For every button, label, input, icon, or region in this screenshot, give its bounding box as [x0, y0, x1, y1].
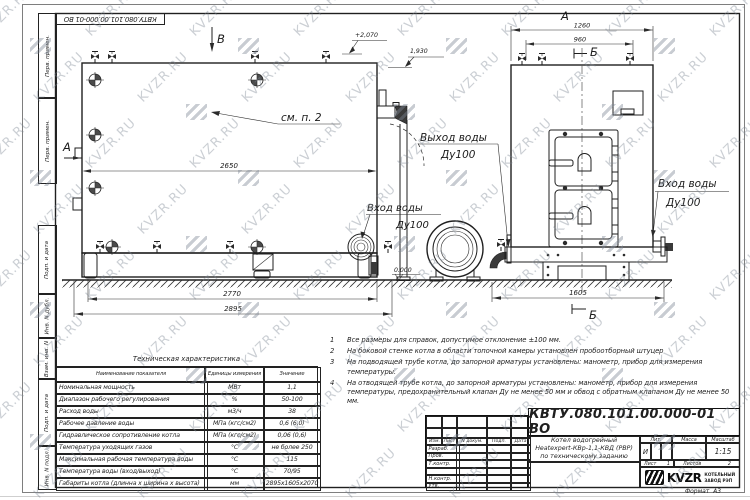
note-item: 3На подводящей трубе котла, до запорной …	[330, 358, 734, 376]
dim-2895: 2895	[224, 305, 242, 313]
corner-doc-number: КВТУ.080.101.00.000-01 ВО	[64, 15, 157, 23]
view-b-label: В	[217, 32, 225, 46]
lit-header: Лит.	[640, 436, 672, 443]
scale-header: Масштаб	[706, 436, 740, 443]
spec-cell: мм	[204, 477, 265, 491]
kvzr-wordmark: KVZR	[667, 471, 702, 485]
see-note-label: см. п. 2	[281, 112, 322, 124]
fan-blower	[427, 221, 483, 281]
front-view-boiler: А 1260 960 Б	[490, 9, 729, 322]
side-strip-box: Инв. N дубл.	[38, 293, 57, 339]
company-logo: KVZR КОТЕЛЬНЫЙ ЗАВОД РЭП	[640, 467, 740, 488]
product-name: Котел водогрейный Heatexpert-КВр-1,1-КВД…	[528, 436, 640, 462]
note-item: 1Все размеры для справок, допустимое отк…	[330, 336, 734, 345]
revision-grid-cell	[486, 482, 512, 492]
revision-grid: Изм.ЛистN докум.Подп.ДатаРазраб.Пров.Т.к…	[425, 415, 528, 488]
inlet-right-dn: Ду100	[665, 197, 701, 209]
corner-stamp: КВТУ.080.101.00.000-01 ВО	[55, 13, 165, 25]
elev-top-label: +2,070	[355, 32, 378, 39]
dim-960: 960	[574, 36, 586, 44]
section-b-top-label: Б	[590, 45, 598, 59]
dim-1605: 1605	[569, 289, 587, 297]
lit-value: И	[640, 443, 651, 460]
side-strip-box: Перв. примен.	[38, 97, 57, 184]
mass-value	[672, 443, 706, 460]
note-item: 2На боковой стенке котла в области топоч…	[330, 347, 734, 356]
mass-header: Масса	[672, 436, 706, 443]
scale-value: 1:15	[706, 443, 740, 460]
inlet-left-dn: Ду100	[395, 220, 429, 231]
side-strip-box: Подп. и дата	[38, 225, 57, 295]
dim-2770: 2770	[223, 290, 241, 298]
revision-grid-cell: Утв.	[426, 482, 460, 492]
ground-line	[62, 280, 672, 288]
title-block: КВТУ.080.101.00.000-01 ВО Изм.ЛистN доку…	[425, 408, 740, 488]
spec-cell: 2895х1605х2070	[263, 477, 321, 491]
lit-cell-3	[661, 443, 672, 460]
doc-number: КВТУ.080.101.00.000-01 ВО	[528, 408, 740, 436]
format-note: Формат А3	[628, 488, 750, 495]
sheet-cell: Лист1	[640, 460, 674, 467]
drawing-sheet: В А +2,070 1,930 см. п. 2	[0, 0, 750, 500]
left-view-boiler: В А +2,070 1,930 см. п. 2	[62, 27, 511, 317]
dim-1260: 1260	[574, 22, 591, 30]
note-item: 4На отводящей трубе котла, до запорной а…	[330, 379, 734, 407]
spec-table-title: Техническая характеристика	[55, 355, 318, 363]
dim-2650: 2650	[220, 162, 238, 170]
inlet-right-label: Вход воды	[658, 178, 717, 190]
sheets-cell: Листов2	[674, 460, 740, 467]
outlet-dn-label: Ду100	[440, 149, 476, 161]
side-strip-box: Перв. примен.	[38, 13, 57, 99]
company-name: КОТЕЛЬНЫЙ ЗАВОД РЭП	[704, 472, 735, 482]
view-a-top-label: А	[560, 9, 569, 23]
revision-grid-cell	[456, 482, 488, 492]
inlet-left-label: Вход воды	[367, 203, 423, 214]
kvzr-logo-icon	[645, 470, 664, 485]
outlet-water-label: Выход воды	[420, 132, 487, 144]
spec-table: Наименование показателяЕдиницы измерения…	[55, 366, 318, 488]
notes-block: 1Все размеры для справок, допустимое отк…	[330, 336, 734, 408]
elev-mid-label: 1,930	[410, 48, 428, 55]
spec-cell: Габариты котла (длинна х ширина х высота…	[56, 477, 208, 491]
empty-cell	[528, 462, 640, 488]
lit-cell-2	[651, 443, 661, 460]
elev-zero-label: 0.000	[394, 267, 412, 274]
section-b-bottom-label: Б	[589, 308, 597, 322]
view-a-label: А	[62, 140, 71, 154]
